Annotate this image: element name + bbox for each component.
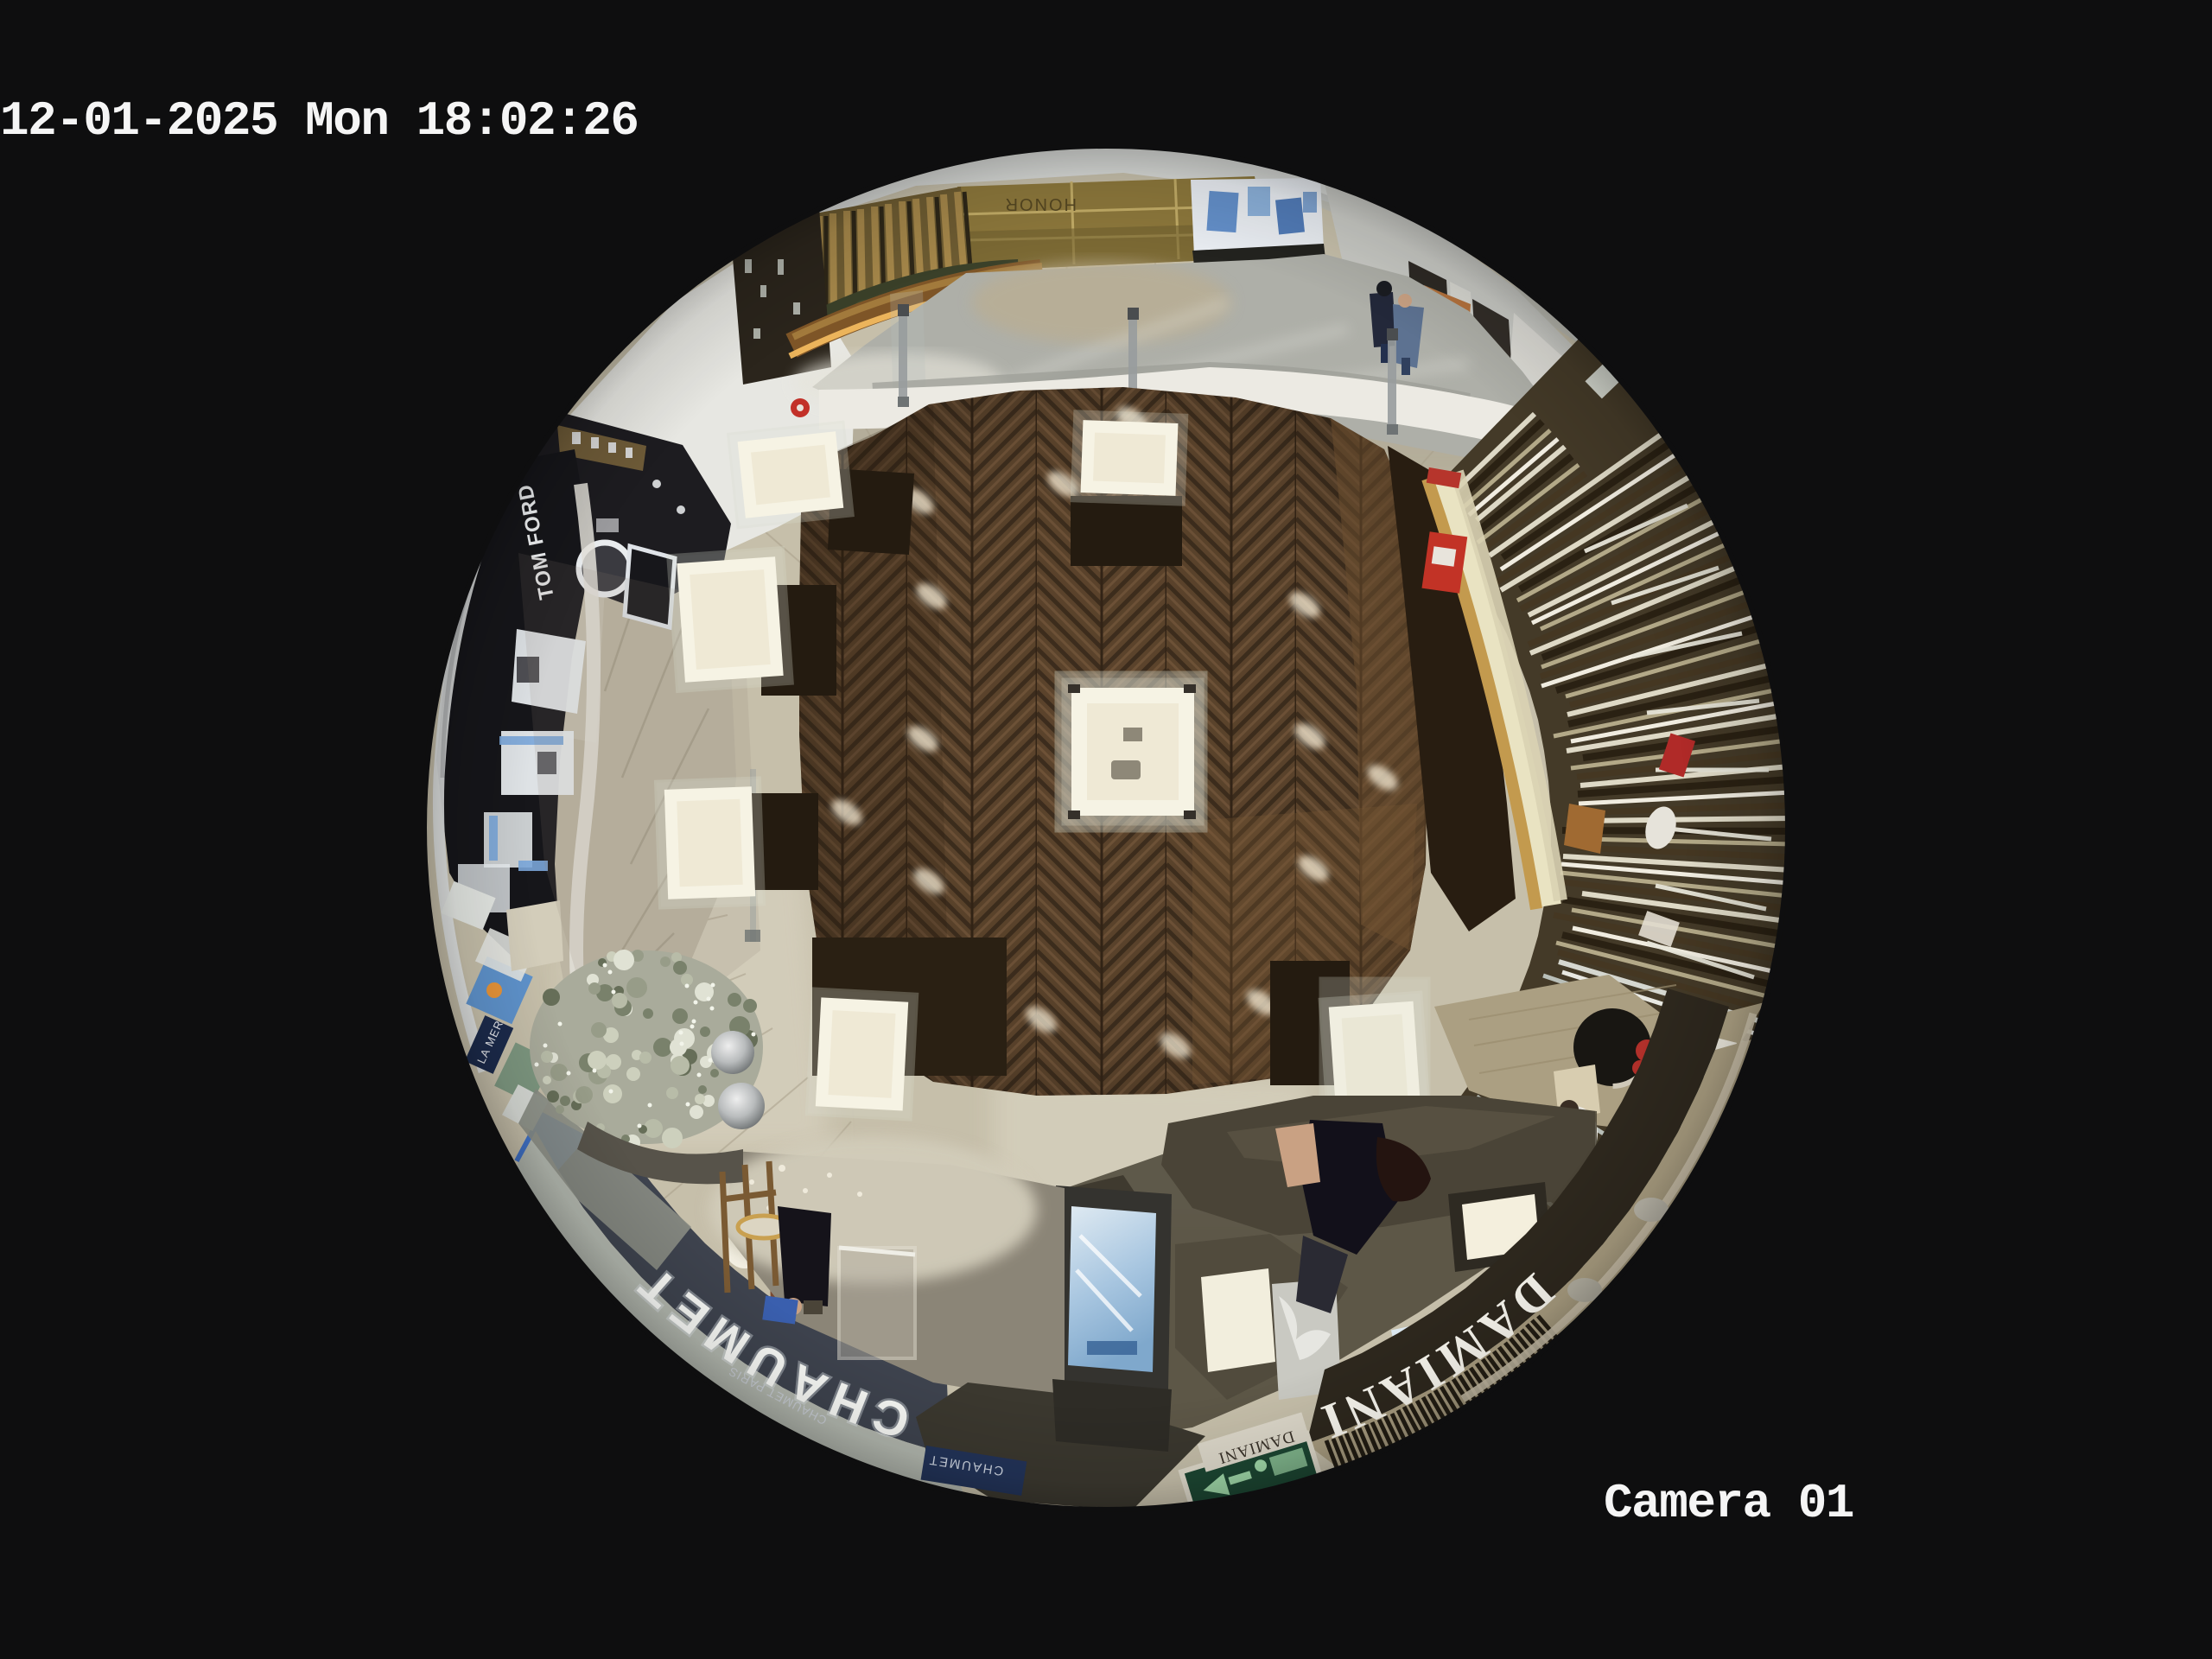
svg-text:12-01-2025 Mon 18:02:26: 12-01-2025 Mon 18:02:26 (0, 93, 638, 149)
svg-text:Camera 01: Camera 01 (1604, 1476, 1853, 1531)
